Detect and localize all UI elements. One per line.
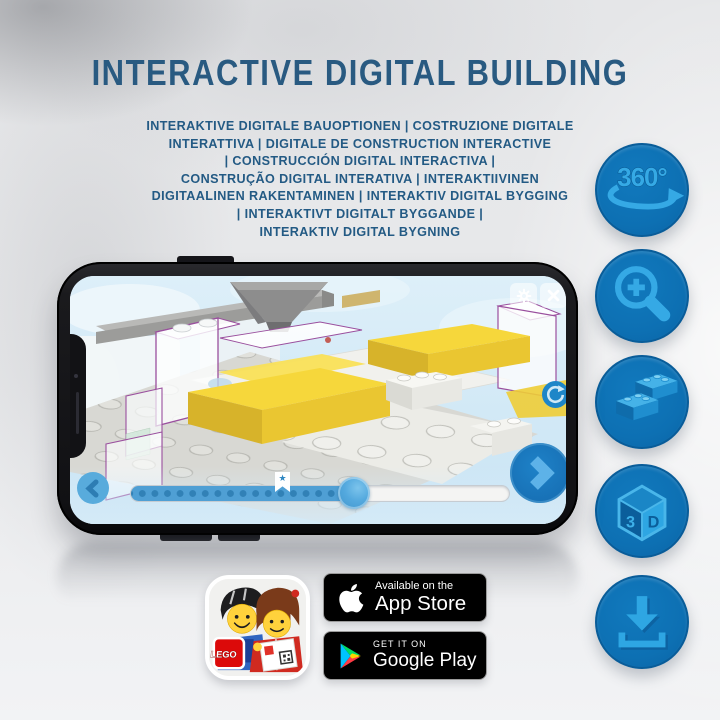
rotation-360-icon: 360° [597, 143, 687, 237]
cube-3d-icon: 3 D [597, 464, 687, 558]
next-step-button[interactable] [510, 443, 566, 503]
gear-icon [516, 288, 532, 304]
app-store-name: App Store [375, 593, 466, 615]
google-play-icon [337, 642, 363, 670]
google-play-badge[interactable]: GET IT ON Google Play [323, 631, 487, 680]
build-progress-track[interactable] [130, 485, 510, 502]
chevron-left-icon [77, 472, 109, 504]
lego-bricks-icon [597, 355, 687, 449]
build-progress-fill [131, 486, 355, 501]
feature-badge-zoom [595, 249, 689, 343]
phone-screen: ★ [70, 276, 566, 524]
close-icon [546, 288, 561, 303]
subtitle-line: CONSTRUÇÃO DIGITAL INTERATIVA | INTERAKT… [70, 171, 650, 189]
feature-badge-bricks [595, 355, 689, 449]
cube-face-3: 3 [626, 513, 635, 531]
page-title: INTERACTIVE DIGITAL BUILDING [0, 52, 720, 94]
google-play-tagline: GET IT ON [373, 639, 477, 650]
subtitle-line: INTERATTIVA | DIGITALE DE CONSTRUCTION I… [70, 136, 650, 154]
progress-thumb[interactable] [338, 477, 370, 509]
prev-step-button[interactable] [77, 472, 109, 504]
feature-badge-3d: 3 D [595, 464, 689, 558]
subtitle-line: INTERAKTIVE DIGITALE BAUOPTIONEN | COSTR… [70, 118, 650, 136]
chevron-right-icon [510, 443, 566, 503]
lego-marketing-panel: INTERACTIVE DIGITAL BUILDING INTERAKTIVE… [0, 0, 720, 720]
download-icon [597, 575, 687, 669]
subtitle-multilingual: INTERAKTIVE DIGITALE BAUOPTIONEN | COSTR… [70, 118, 650, 241]
rotate-icon [545, 384, 566, 405]
feature-badge-360: 360° [595, 143, 689, 237]
lego-logo-text: LEGO [210, 650, 237, 660]
star-icon: ★ [278, 472, 286, 485]
phone-notch [70, 334, 86, 458]
zoom-in-icon [597, 249, 687, 343]
lego-app-art: LEGO [209, 579, 306, 676]
subtitle-line: | CONSTRUCCIÓN DIGITAL INTERACTIVA | [70, 153, 650, 171]
speaker-icon [76, 392, 79, 434]
google-play-name: Google Play [373, 650, 477, 672]
apple-icon [337, 582, 365, 614]
label-360: 360° [617, 164, 667, 192]
camera-icon [74, 374, 78, 378]
lego-app-icon[interactable]: LEGO [205, 575, 310, 680]
subtitle-line: INTERAKTIV DIGITAL BYGNING [70, 224, 650, 242]
cube-face-d: D [648, 513, 660, 531]
settings-button[interactable] [510, 283, 537, 308]
close-button[interactable] [540, 283, 566, 308]
feature-badge-download [595, 575, 689, 669]
app-store-badge[interactable]: Available on the App Store [323, 573, 487, 622]
rotate-view-button[interactable] [542, 381, 566, 408]
phone-reflection [57, 542, 578, 614]
subtitle-line: DIGITAALINEN RAKENTAMINEN | INTERAKTIV D… [70, 188, 650, 206]
subtitle-line: | INTERAKTIVT DIGITALT BYGGANDE | [70, 206, 650, 224]
